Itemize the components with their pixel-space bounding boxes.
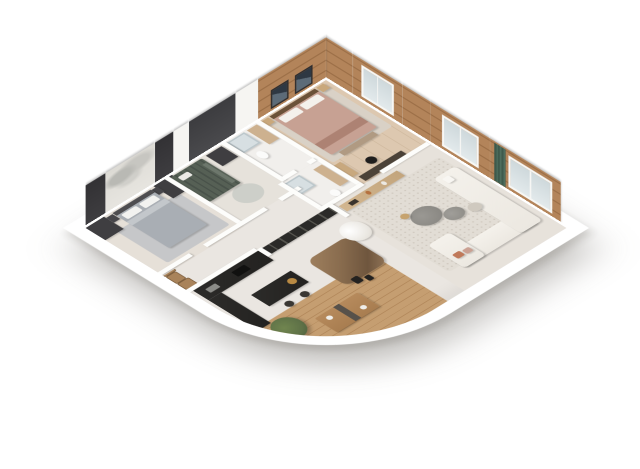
floor-plan-render: [0, 0, 640, 469]
sideboard-niche: [348, 199, 359, 206]
outdoor-table: [315, 292, 380, 332]
apartment-plan: [86, 80, 567, 376]
sofa-chaise: [428, 232, 486, 268]
bunk-pillow: [178, 171, 194, 181]
green-curtain: [494, 143, 505, 188]
kitchen-counter: [193, 251, 274, 301]
bar-stool-1: [282, 299, 296, 308]
glass-partition: [261, 207, 338, 254]
kitchen-island: [251, 271, 309, 307]
table-plate-1: [325, 315, 335, 321]
bar-stool-2: [298, 290, 312, 299]
table-plate-2: [359, 304, 369, 310]
sideboard-vase-2: [380, 181, 388, 186]
interior-wall: [257, 247, 273, 257]
floor: [86, 80, 567, 376]
terrace-deck: [252, 256, 447, 376]
gold-island-sink: [285, 277, 299, 286]
sofa-cushion-terracotta: [452, 251, 465, 259]
table-runner: [333, 304, 361, 321]
sideboard-vase: [364, 190, 372, 195]
kitchen-sink: [205, 283, 221, 293]
